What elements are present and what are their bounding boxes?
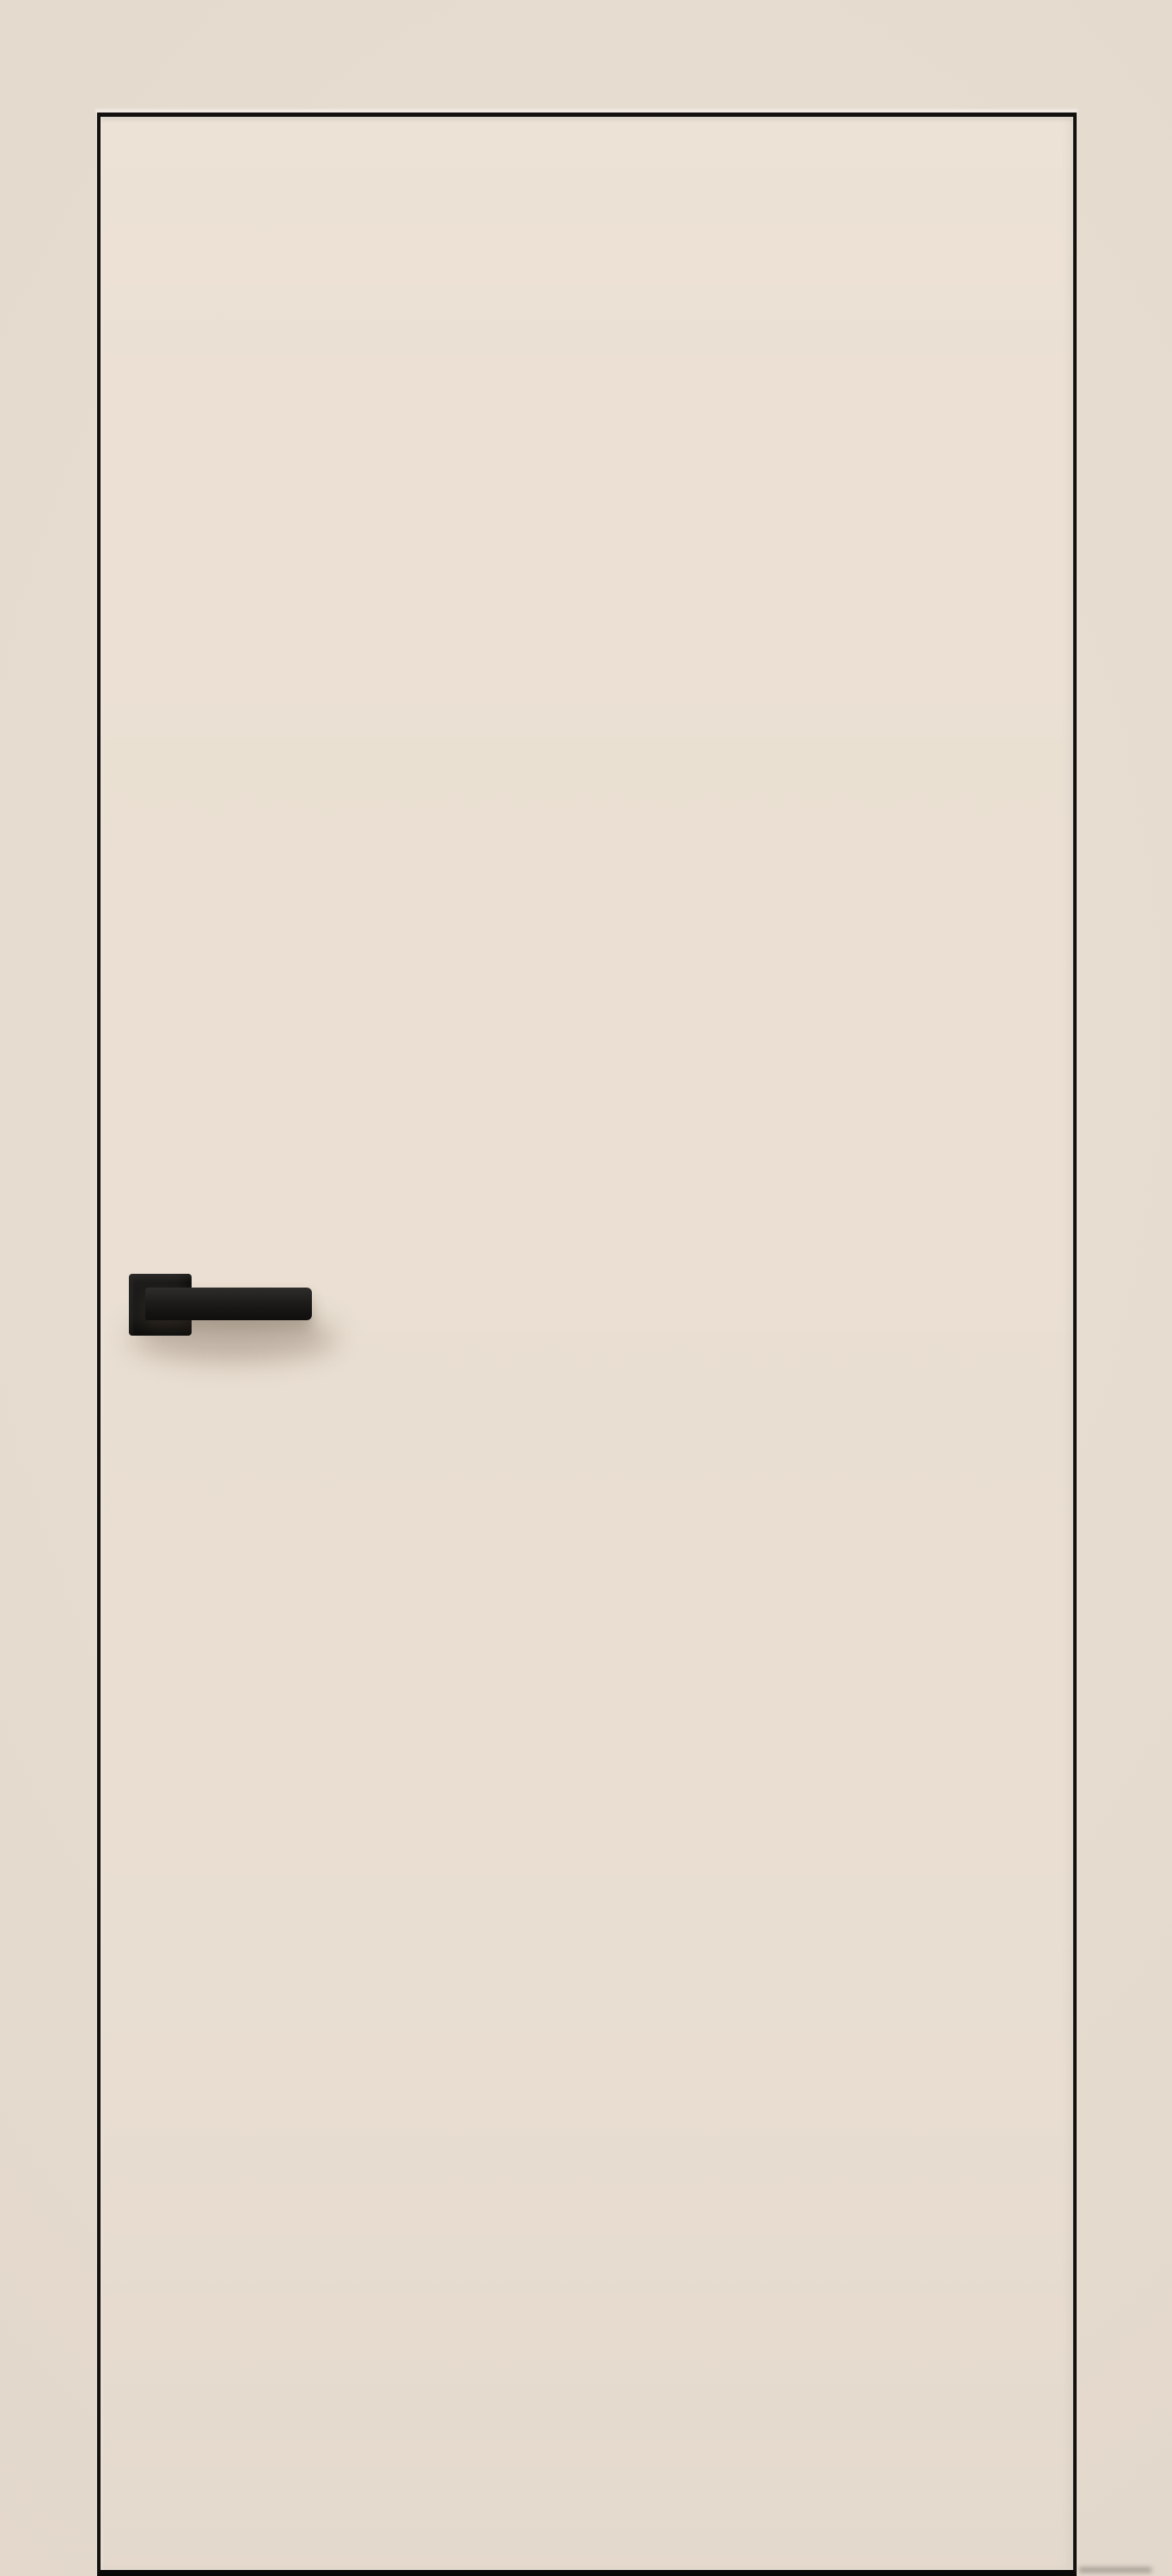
- handle-lever: [145, 1288, 312, 1320]
- floor-shadow-smudge: [1079, 2567, 1151, 2573]
- door-product-photo: [0, 0, 1172, 2576]
